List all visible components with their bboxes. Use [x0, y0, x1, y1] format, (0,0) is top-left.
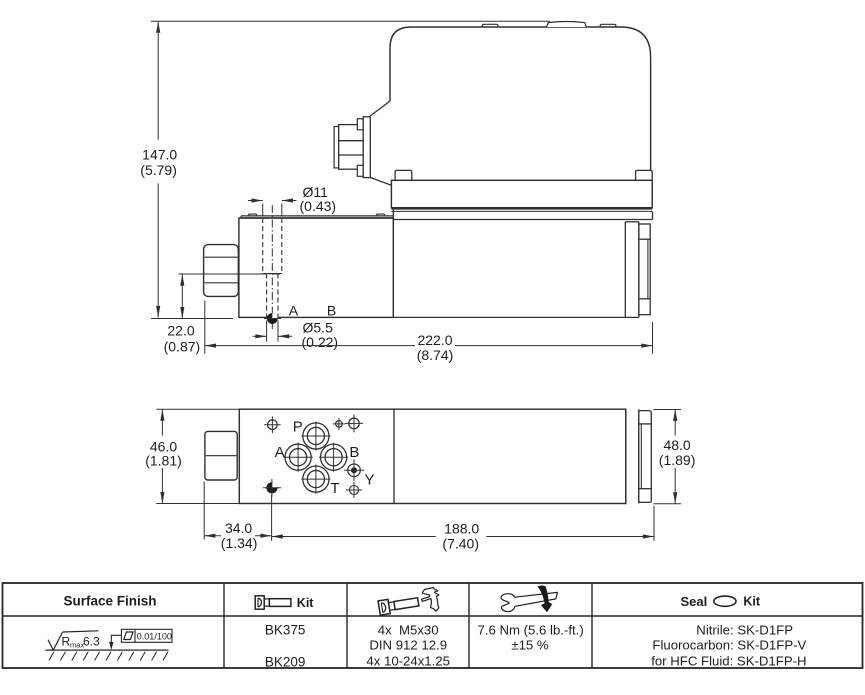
- svg-text:(0.22): (0.22): [302, 334, 339, 350]
- svg-text:B: B: [327, 302, 336, 318]
- svg-text:Seal: Seal: [681, 594, 708, 609]
- svg-text:4x M5x30: 4x M5x30: [378, 622, 439, 637]
- svg-text:(7.40): (7.40): [442, 536, 479, 552]
- svg-text:T: T: [330, 480, 339, 497]
- svg-text:(5.79): (5.79): [140, 162, 177, 178]
- svg-text:222.0: 222.0: [417, 332, 452, 348]
- svg-text:P: P: [293, 418, 303, 435]
- svg-text:Kit: Kit: [297, 596, 315, 610]
- svg-text:Fluorocarbon: SK-D1FP-V: Fluorocarbon: SK-D1FP-V: [652, 638, 806, 653]
- svg-text:(1.81): (1.81): [145, 453, 182, 469]
- svg-text:Y: Y: [364, 471, 374, 488]
- svg-text:48.0: 48.0: [663, 437, 690, 453]
- svg-text:A: A: [289, 302, 299, 318]
- svg-text:147.0: 147.0: [142, 147, 177, 163]
- svg-text:(1.89): (1.89): [659, 452, 696, 468]
- svg-text:188.0: 188.0: [444, 520, 479, 536]
- svg-text:(8.74): (8.74): [417, 347, 454, 363]
- svg-text:DIN 912 12.9: DIN 912 12.9: [369, 638, 447, 653]
- svg-text:(1.34): (1.34): [221, 535, 258, 551]
- svg-text:4x 10-24x1.25: 4x 10-24x1.25: [366, 653, 450, 668]
- svg-text:7.6 Nm (5.6 lb.-ft.): 7.6 Nm (5.6 lb.-ft.): [477, 622, 583, 637]
- svg-text:BK375: BK375: [265, 622, 306, 637]
- svg-text:±15 %: ±15 %: [511, 638, 549, 653]
- svg-text:Surface Finish: Surface Finish: [63, 594, 156, 609]
- svg-text:Kit: Kit: [743, 595, 761, 609]
- svg-text:(0.87): (0.87): [164, 338, 201, 354]
- svg-text:6.3: 6.3: [83, 635, 100, 649]
- svg-text:22.0: 22.0: [167, 323, 194, 339]
- svg-text:A: A: [275, 444, 285, 461]
- svg-text:(0.43): (0.43): [300, 198, 337, 214]
- svg-text:BK209: BK209: [265, 654, 306, 669]
- svg-text:0.01/100: 0.01/100: [137, 631, 172, 641]
- svg-text:for HFC Fluid: SK-D1FP-H: for HFC Fluid: SK-D1FP-H: [651, 653, 806, 668]
- svg-text:B: B: [349, 444, 359, 461]
- svg-text:34.0: 34.0: [225, 520, 252, 536]
- svg-text:Nitrile: SK-D1FP: Nitrile: SK-D1FP: [696, 622, 793, 637]
